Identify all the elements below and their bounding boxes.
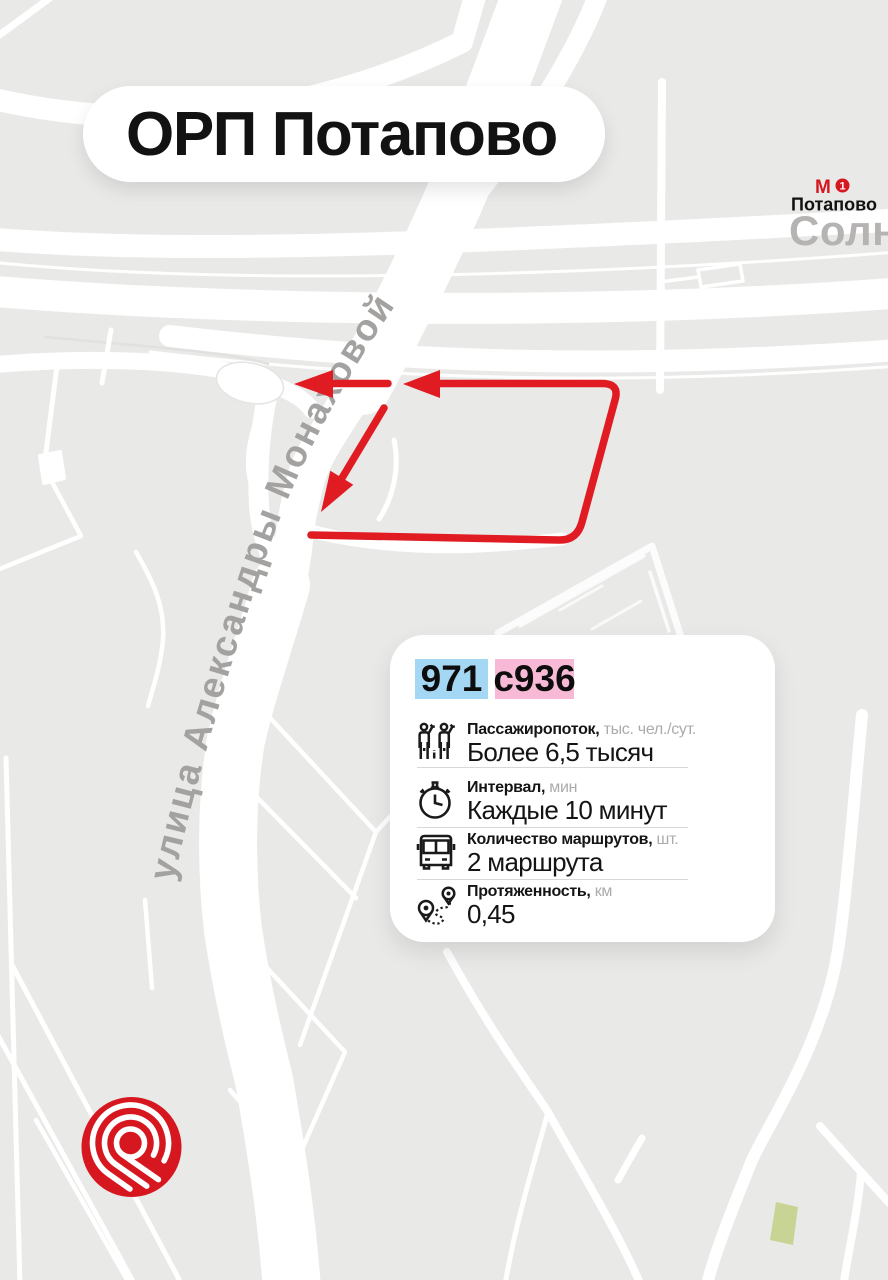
svg-text:1: 1 — [839, 181, 845, 193]
svg-text:Солн: Солн — [789, 207, 888, 254]
